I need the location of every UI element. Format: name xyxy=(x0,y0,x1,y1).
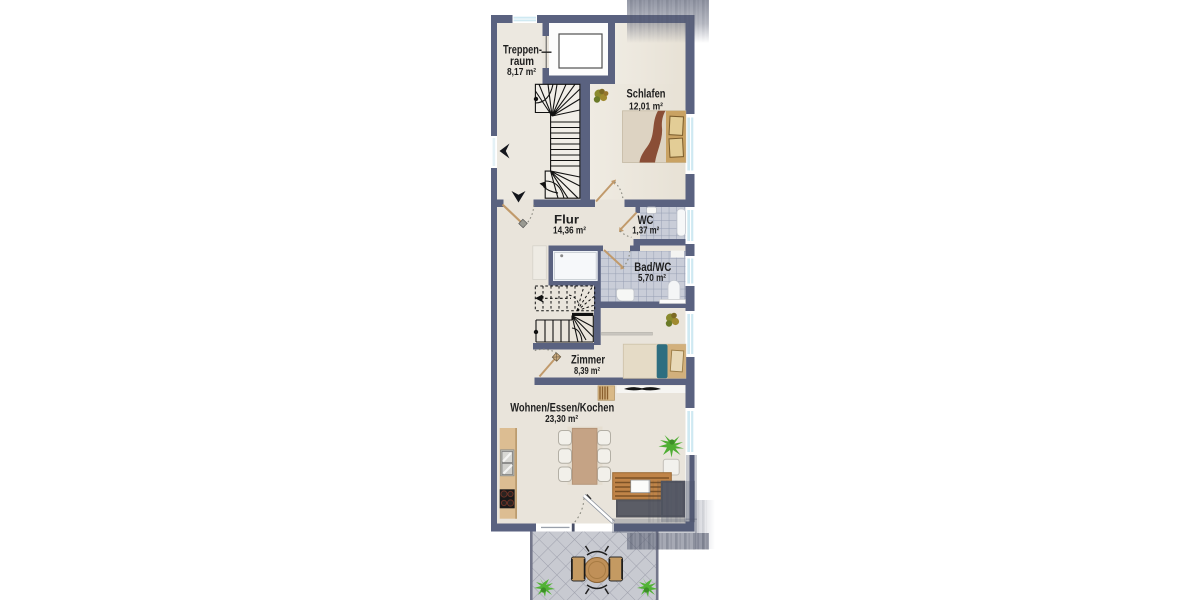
svg-text:Wohnen/Essen/Kochen: Wohnen/Essen/Kochen xyxy=(510,403,614,415)
svg-text:Zimmer: Zimmer xyxy=(571,355,605,367)
svg-text:8,17 m²: 8,17 m² xyxy=(507,67,537,78)
svg-text:5,70 m²: 5,70 m² xyxy=(638,273,667,284)
svg-text:Schlafen: Schlafen xyxy=(627,89,666,101)
svg-text:12,01 m²: 12,01 m² xyxy=(629,102,664,113)
svg-text:8,39 m²: 8,39 m² xyxy=(574,366,601,377)
svg-text:23,30 m²: 23,30 m² xyxy=(545,414,579,425)
svg-text:1,37 m²: 1,37 m² xyxy=(632,226,660,237)
svg-text:Treppen-: Treppen- xyxy=(503,45,542,57)
svg-text:14,36 m²: 14,36 m² xyxy=(553,226,587,237)
